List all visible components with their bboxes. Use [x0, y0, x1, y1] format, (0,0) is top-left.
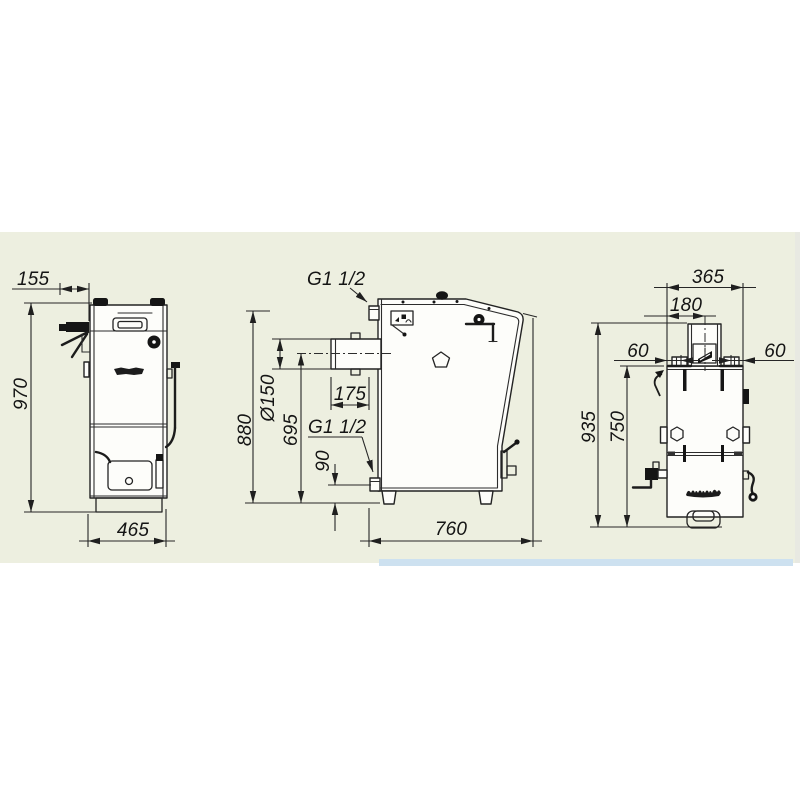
screw-dot-3: [456, 300, 459, 303]
side-tab-right: [743, 427, 750, 443]
side-foot-rear: [479, 491, 493, 504]
safety-fitting-left-body: [672, 357, 687, 366]
type-plate-glyph-b: [402, 315, 407, 320]
dim-695-label: 695: [281, 414, 302, 447]
dim-935-label: 935: [579, 411, 600, 444]
dim-175-label: 175: [334, 384, 367, 405]
dim-970-label: 970: [11, 378, 32, 411]
dim-60-right-label: 60: [764, 341, 786, 362]
thermostat-knob-center: [477, 318, 480, 321]
dim-750-label: 750: [608, 411, 629, 444]
right-cap: [150, 298, 165, 306]
control-knob-center: [152, 340, 156, 344]
dim-365-label: 365: [692, 267, 725, 288]
type-plate-leader-dot: [403, 333, 407, 337]
return-fitting-label: G1 1/2: [308, 417, 366, 438]
pipe-bar-left: [683, 369, 687, 391]
shaker-lever-knob: [514, 439, 519, 444]
seam-tick-left: [668, 452, 675, 456]
seam-bolt-left: [683, 445, 686, 462]
open-door-knob: [59, 324, 67, 331]
dim-465-label: 465: [117, 520, 150, 541]
supply-fitting-label: G1 1/2: [307, 269, 365, 290]
crank-ring-hole: [751, 495, 755, 499]
boiler-dimension-drawing-page: 155 970 465: [0, 0, 800, 800]
thermometer-cap: [156, 454, 163, 461]
dim-760-label: 760: [435, 519, 468, 540]
vent-cap-icon: [436, 291, 448, 299]
seam-tick-right: [734, 452, 742, 456]
dim-90-label: 90: [313, 450, 334, 472]
side-hinge-tab: [84, 362, 89, 377]
seam-bolt-right: [721, 445, 724, 462]
dim-180-label: 180: [670, 295, 703, 316]
supply-fitting: [369, 306, 379, 320]
open-door-edge: [66, 322, 89, 332]
drain-valve-body: [645, 468, 658, 480]
return-fitting: [370, 478, 380, 491]
panel-edge-strip: [795, 232, 800, 563]
accent-strip: [379, 559, 793, 566]
pipe-bar-right: [721, 369, 725, 391]
side-tab-left: [661, 427, 668, 443]
drain-valve-neck: [658, 470, 667, 478]
dim-155-label: 155: [17, 269, 50, 290]
side-foot-front: [382, 491, 396, 504]
screw-dot-2: [433, 301, 436, 304]
side-latch-right: [743, 389, 749, 404]
dim-60-left-label: 60: [627, 341, 649, 362]
left-cap: [93, 298, 108, 306]
screw-dot-1: [402, 301, 405, 304]
technical-drawing: 155 970 465: [0, 0, 800, 800]
dim-150-label: Ø150: [258, 374, 279, 423]
safety-fitting-left: [668, 357, 691, 366]
screw-dot-4: [488, 307, 491, 310]
